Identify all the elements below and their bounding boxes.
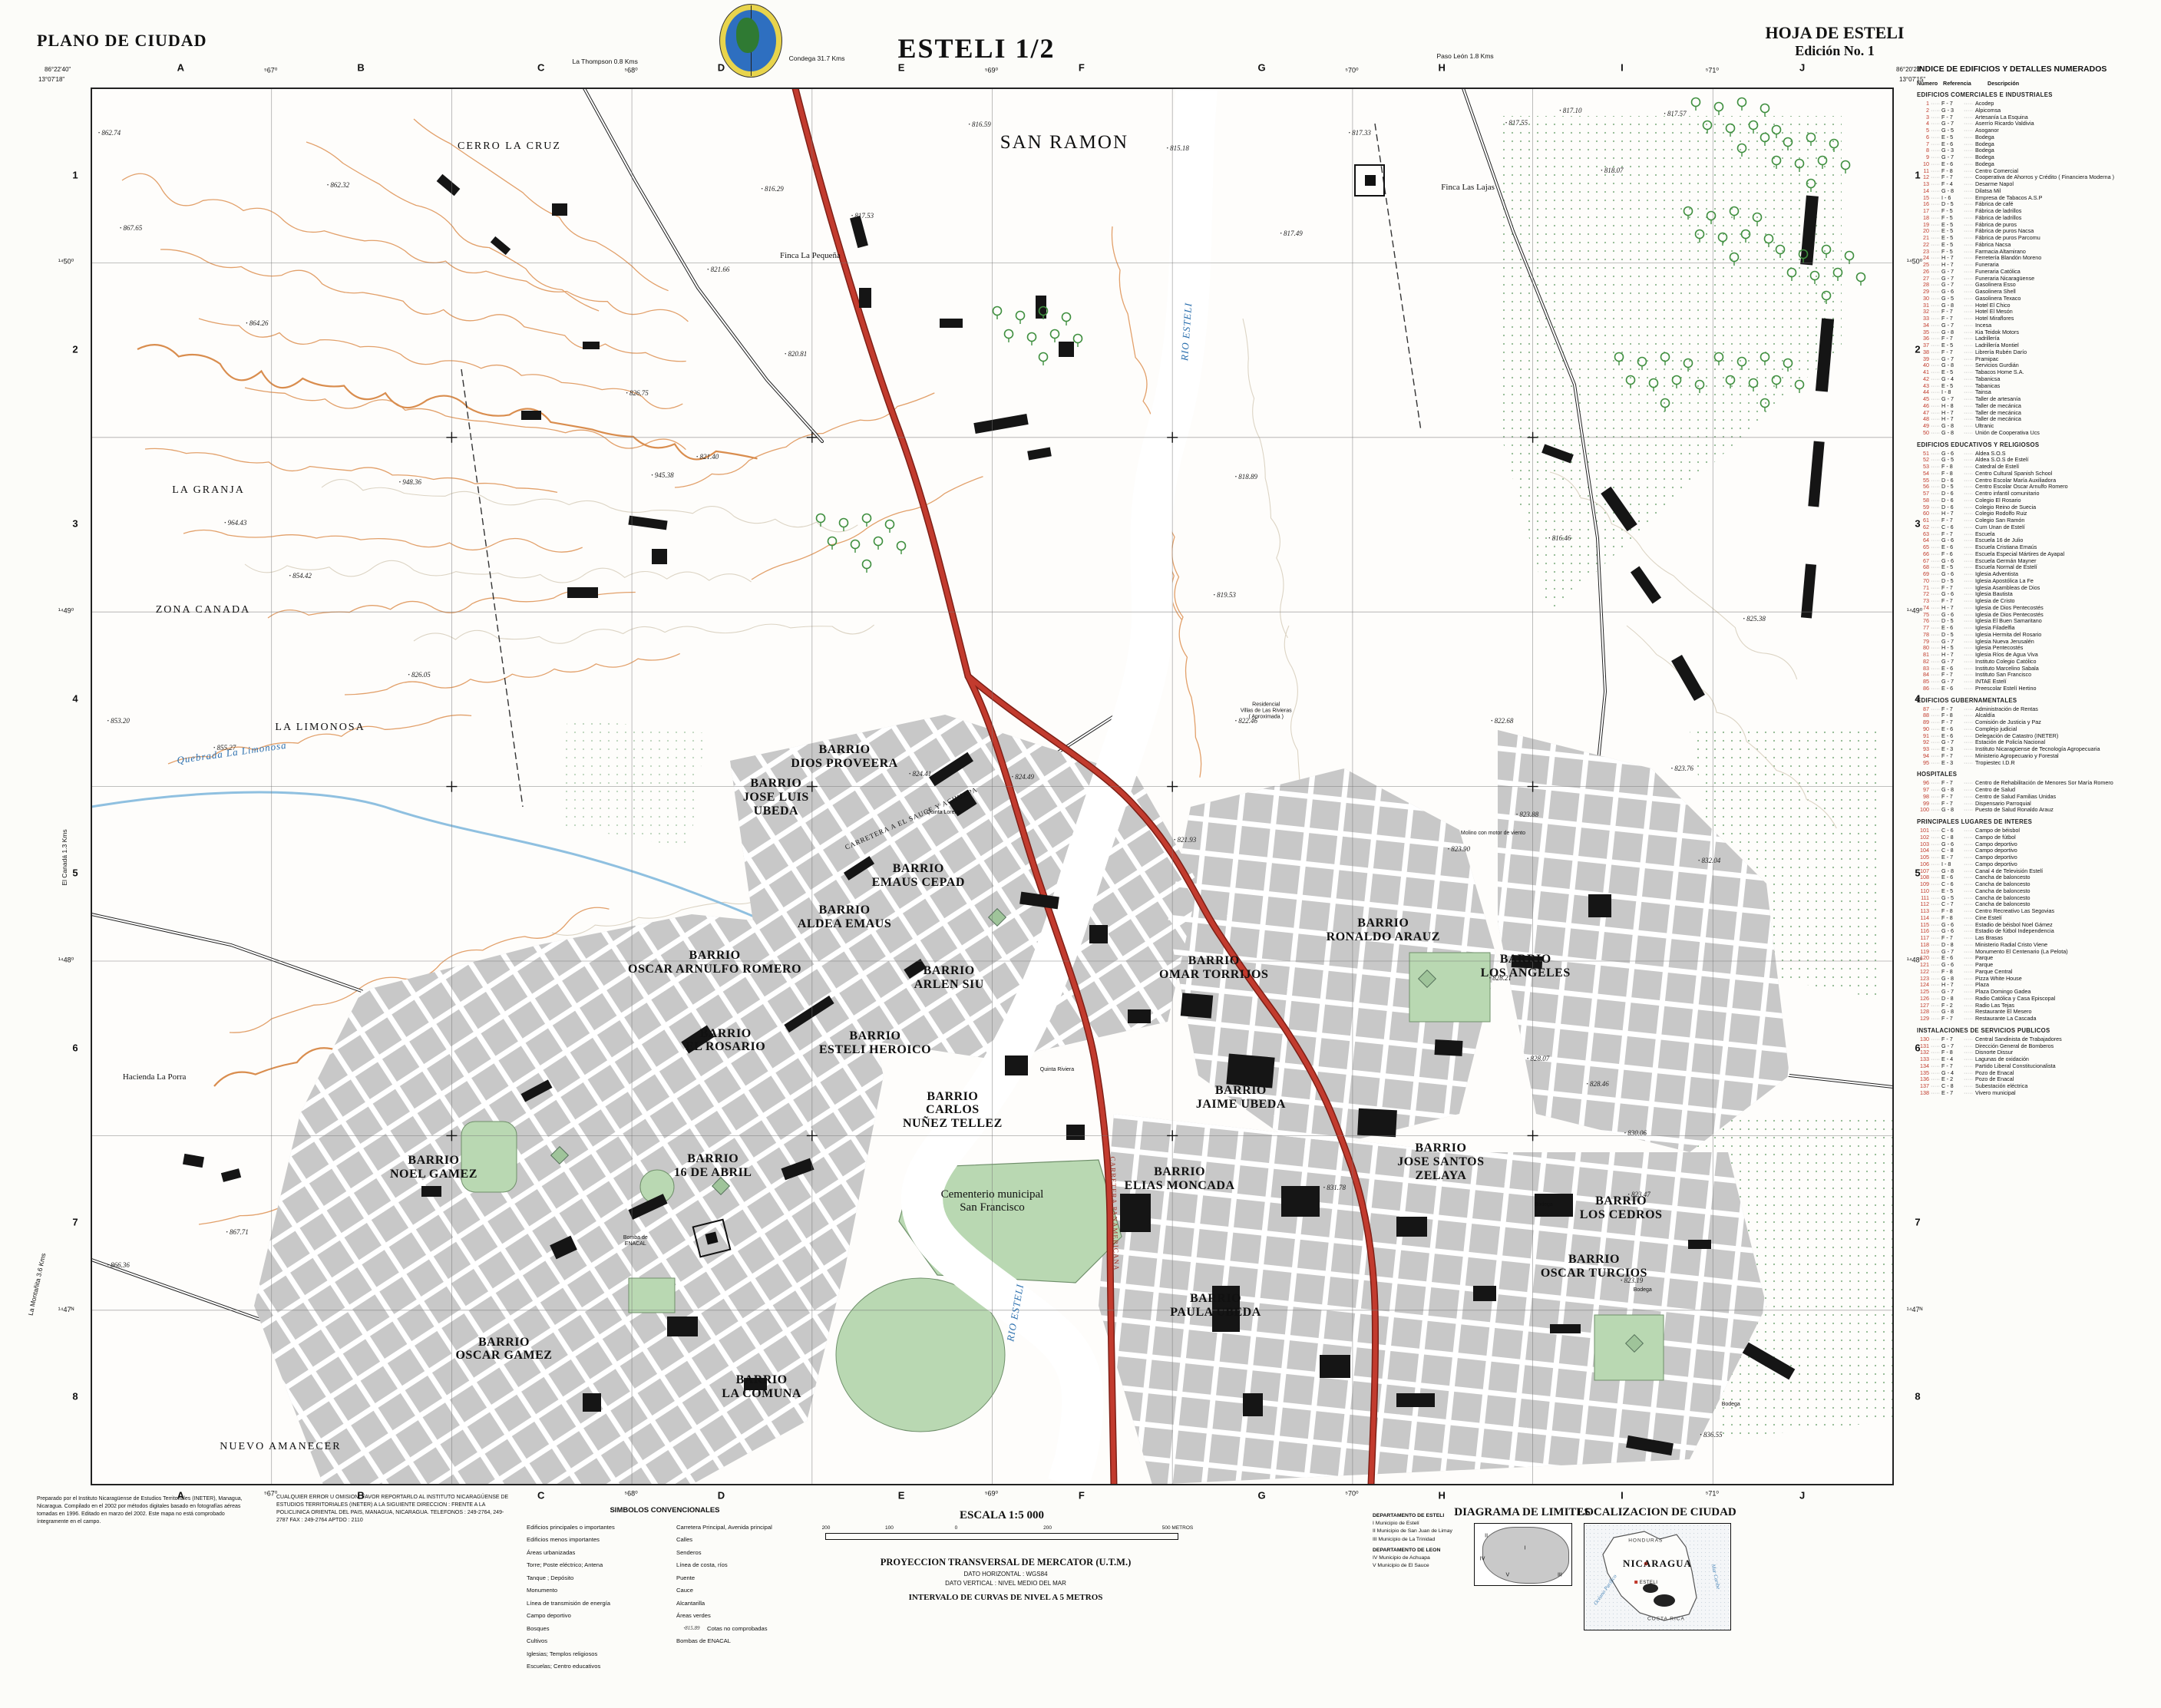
index-entry: 121 ····· G - 6 ····· Parque: [1917, 962, 2156, 969]
entry-description: Asoganor: [1975, 127, 2156, 134]
spot-height: 867.71: [226, 1228, 248, 1236]
entry-description: Campo deportivo: [1975, 861, 2156, 868]
entry-description: Catedral de Estelí: [1975, 464, 2156, 471]
margin-note: Paso León 1.8 Kms: [1436, 52, 1493, 60]
entry-description: Funeraria: [1975, 262, 2156, 269]
spot-height: 945.38: [651, 471, 673, 479]
index-section-title: EDIFICIOS EDUCATIVOS Y RELIGIOSOS: [1917, 441, 2156, 448]
entry-description: Canal 4 de Televisión Estelí: [1975, 868, 2156, 875]
municipios-esteli: I Municipio de EstelíII Municipio de San…: [1373, 1520, 1472, 1544]
legend-left: Edificios principales o importantes Edif…: [527, 1521, 676, 1673]
entry-description: Fábrica de puros: [1975, 222, 2156, 229]
spot-height: 862.74: [98, 129, 121, 137]
spot-height: 864.26: [246, 319, 268, 327]
spot-height: 817.10: [1559, 107, 1581, 114]
entry-description: Artesanía La Esquina: [1975, 114, 2156, 121]
entry-description: Centro Escolar María Auxiliadora: [1975, 477, 2156, 484]
entry-description: Gasolinera Shell: [1975, 289, 2156, 296]
entry-description: Puesto de Salud Ronaldo Arauz: [1975, 807, 2156, 814]
entry-description: Iglesia Pentecostés: [1975, 645, 2156, 652]
entry-description: Iglesia Filadelfia: [1975, 625, 2156, 632]
entry-description: Ladrillería: [1975, 335, 2156, 342]
entry-description: Bodega: [1975, 141, 2156, 148]
entry-description: Fábrica Nacsa: [1975, 242, 2156, 249]
entry-description: Acodep: [1975, 101, 2156, 107]
entry-description: Ministerio Agropecuario y Forestal: [1975, 753, 2156, 760]
entry-description: Centro Escolar Oscar Arnulfo Romero: [1975, 484, 2156, 491]
index-section-title: HOSPITALES: [1917, 771, 2156, 778]
datum-horizontal: DATO HORIZONTAL : WGS84: [881, 1571, 1132, 1578]
col-referencia: Referencia: [1943, 80, 1988, 87]
entry-description: INTAE Estelí: [1975, 679, 2156, 686]
entry-description: Aldea S.O.S: [1975, 451, 2156, 458]
index-section-title: PRINCIPALES LUGARES DE INTERES: [1917, 818, 2156, 825]
entry-description: Aldea S.O.S de Estelí: [1975, 457, 2156, 464]
spot-height: 821.40: [696, 453, 719, 461]
entry-description: Lagunas de oxidación: [1975, 1056, 2156, 1063]
entry-description: Parque: [1975, 962, 2156, 969]
index-entry: 72 ····· G - 6 ····· Iglesia Bautista: [1917, 591, 2156, 598]
entry-description: Pozo de Enacal: [1975, 1076, 2156, 1083]
entry-description: Pramipac: [1975, 356, 2156, 363]
scale-tick: 500 METROS: [1162, 1525, 1193, 1531]
entry-description: Hotel Miraflores: [1975, 316, 2156, 322]
entry-description: Iglesia de Dios Pentecostés: [1975, 605, 2156, 612]
entry-description: Complejo judicial: [1975, 726, 2156, 733]
index-column-headers: Número Referencia Descripción: [1917, 80, 2156, 87]
spot-height: 816.29: [762, 185, 784, 193]
entry-description: Iglesia Asambleas de Dios: [1975, 585, 2156, 592]
map-canvas[interactable]: SAN RAMONCERRO LA CRUZLA GRANJAZONA CANA…: [91, 88, 1893, 1485]
entry-description: Unión de Cooperativa Ucs: [1975, 430, 2156, 437]
entry-description: Partido Liberal Constitucionalista: [1975, 1063, 2156, 1070]
spot-height: 816.59: [968, 121, 990, 128]
legend-item: Edificios principales o importantes: [527, 1521, 676, 1534]
spot-height: 817.57: [1664, 110, 1686, 117]
index-entry: 87 ····· F - 7 ····· Administración de R…: [1917, 706, 2156, 713]
spot-height: 817.33: [1349, 129, 1371, 137]
index-entry: 43 ····· E - 5 ····· Tabanicas: [1917, 383, 2156, 390]
municipios-leon: IV Municipio de AchuapaV Municipio de El…: [1373, 1554, 1472, 1570]
legend-item: Edificios menos importantes: [527, 1534, 676, 1547]
spot-height: 828.46: [1586, 1080, 1608, 1088]
spot-height: 818.07: [1601, 167, 1623, 174]
entry-description: Pizza White House: [1975, 976, 2156, 983]
spot-height: 866.36: [107, 1261, 130, 1269]
error-report-notice: CUALQUIER ERROR U OMISION, FAVOR REPORTA…: [276, 1494, 514, 1525]
index-rows: EDIFICIOS COMERCIALES E INDUSTRIALES 1 ·…: [1917, 91, 2156, 1097]
legend: SIMBOLOS CONVENCIONALES Edificios princi…: [527, 1506, 826, 1673]
entry-description: Iglesia de Dios Pentecostés: [1975, 612, 2156, 619]
limites-title: DIAGRAMA DE LIMITES: [1454, 1506, 1591, 1519]
legend-item: Bombas de ENACAL: [676, 1635, 826, 1648]
spot-height: 818.89: [1235, 473, 1257, 481]
datum-vertical: DATO VERTICAL : NIVEL MEDIO DEL MAR: [881, 1580, 1132, 1587]
index-entry: 133 ····· E - 4 ····· Lagunas de oxidaci…: [1917, 1056, 2156, 1063]
entry-description: Fábrica de ladrillos: [1975, 208, 2156, 215]
municipio-item: I Municipio de Estelí: [1373, 1520, 1472, 1528]
entry-description: Campo de béisbol: [1975, 828, 2156, 834]
spot-height: 824.49: [1012, 773, 1034, 781]
entry-description: Cancha de baloncesto: [1975, 888, 2156, 895]
entry-description: Dilatsa Mil: [1975, 188, 2156, 195]
entry-description: Iglesia Hermita del Rosario: [1975, 632, 2156, 639]
entry-description: Ultranic: [1975, 423, 2156, 430]
entry-description: Tabanicsa: [1975, 376, 2156, 383]
spot-height: 828.21: [1489, 974, 1512, 982]
spot-height: 815.18: [1167, 144, 1189, 152]
spot-height: 820.81: [785, 350, 807, 358]
entry-description: Ferretería Blandón Moreno: [1975, 255, 2156, 262]
entry-description: Gasolinera Esso: [1975, 282, 2156, 289]
entry-grid-ref: G - 8: [1941, 430, 1961, 437]
entry-grid-ref: F - 7: [1941, 1016, 1961, 1022]
spot-height: 948.36: [399, 478, 421, 486]
entry-description: Cooperativa de Ahorros y Crédito ( Finan…: [1975, 174, 2156, 181]
entry-description: Librería Rubén Darío: [1975, 349, 2156, 356]
margin-note: Condega 31.7 Kms: [789, 55, 845, 62]
index-entry: 14 ····· G - 8 ····· Dilatsa Mil: [1917, 188, 2156, 195]
legend-item: 815.89 Cotas no comprobadas: [676, 1622, 826, 1635]
index-section-title: EDIFICIOS GUBERNAMENTALES: [1917, 697, 2156, 704]
entry-description: Servicios Gurdián: [1975, 362, 2156, 369]
entry-description: Hotel El Mesón: [1975, 309, 2156, 316]
spot-height: 823.88: [1516, 811, 1538, 818]
entry-description: Colegio Reino de Suecia: [1975, 504, 2156, 511]
entry-description: Estación de Policía Nacional: [1975, 739, 2156, 746]
projection-name: PROYECCION TRANSVERSAL DE MERCATOR (U.T.…: [881, 1557, 1132, 1568]
entry-description: Incesa: [1975, 322, 2156, 329]
spot-height: 823.19: [1621, 1277, 1643, 1284]
index-entry: 53 ····· F - 8 ····· Catedral de Estelí: [1917, 464, 2156, 471]
legend-item: Línea de transmisión de energía: [527, 1597, 676, 1610]
spot-height: 855.27: [213, 744, 236, 752]
entry-description: Aserrío Ricardo Valdivia: [1975, 121, 2156, 127]
limites-numeral: IV: [1480, 1557, 1485, 1562]
legend-item: Áreas urbanizadas: [527, 1546, 676, 1559]
municipio-item: III Municipio de La Trinidad: [1373, 1536, 1472, 1544]
scale-tick: 200: [1043, 1525, 1052, 1531]
spot-height: 817.53: [851, 212, 874, 220]
legend-item: Torre; Poste eléctrico; Antena: [527, 1559, 676, 1572]
entry-description: Escuela Cristiana Emaús: [1975, 544, 2156, 551]
entry-description: Gasolinera Texaco: [1975, 296, 2156, 302]
entry-description: Tropiestec I.D.R: [1975, 760, 2156, 767]
spot-height: 826.05: [408, 671, 431, 679]
localizacion-label: NICARAGUA: [1623, 1558, 1692, 1570]
entry-grid-ref: E - 3: [1941, 760, 1961, 767]
limites-numeral: I: [1525, 1546, 1526, 1551]
entry-description: Vivero municipal: [1975, 1090, 2156, 1097]
projection-block: PROYECCION TRANSVERSAL DE MERCATOR (U.T.…: [881, 1557, 1132, 1602]
entry-description: Cancha de baloncesto: [1975, 901, 2156, 908]
spot-height: 817.55: [1505, 119, 1528, 127]
index-entry: 128 ····· G - 8 ····· Restaurante El Mes…: [1917, 1009, 2156, 1016]
index-entry: 112 ····· C - 7 ····· Cancha de balonces…: [1917, 901, 2156, 908]
entry-number: 95: [1917, 760, 1929, 767]
entry-description: Bodega: [1975, 134, 2156, 141]
index-entry: 50 ····· G - 8 ····· Unión de Cooperativ…: [1917, 430, 2156, 437]
legend-item: Calles: [676, 1534, 826, 1547]
entry-description: Kia Teidok Motors: [1975, 329, 2156, 336]
entry-description: Bodega: [1975, 147, 2156, 154]
col-numero: Número: [1917, 80, 1943, 87]
index-entry: 131 ····· G - 7 ····· Dirección General …: [1917, 1043, 2156, 1050]
legend-item: Iglesias; Templos religiosos: [527, 1647, 676, 1660]
depto-leon-title: DEPARTAMENTO DE LEON: [1373, 1547, 1472, 1554]
municipio-item: IV Municipio de Achuapa: [1373, 1554, 1472, 1562]
spot-height: 822.46: [1235, 717, 1257, 725]
index-entry: 116 ····· G - 6 ····· Estadio de fútbol …: [1917, 928, 2156, 935]
index-entry: 35 ····· G - 8 ····· Kia Teidok Motors: [1917, 329, 2156, 336]
entry-description: Alcaldía: [1975, 712, 2156, 719]
col-descripcion: Descripción: [1988, 80, 2019, 87]
margin-note: El Canadá 1.3 Kms: [61, 829, 68, 885]
entry-description: Funeraria Nicaragüense: [1975, 276, 2156, 282]
entry-description: Taller de mecánica: [1975, 410, 2156, 417]
index-entry: 52 ····· G - 5 ····· Aldea S.O.S de Este…: [1917, 457, 2156, 464]
spot-height: 853.20: [107, 717, 130, 725]
entry-description: Fábrica de puros Parcomu: [1975, 235, 2156, 242]
map-frame: SAN RAMONCERRO LA CRUZLA GRANJAZONA CANA…: [91, 88, 1894, 1485]
entry-description: Escuela: [1975, 531, 2156, 538]
legend-right: Carretera Principal, Avenida principal C…: [676, 1521, 826, 1673]
index-entry: 65 ····· E - 6 ····· Escuela Cristiana E…: [1917, 544, 2156, 551]
margin-note: La Montañita 3.6 Kms: [26, 1253, 47, 1317]
entry-description: Colegio Rodolfo Ruiz: [1975, 510, 2156, 517]
entry-description: Centro de Salud Familias Unidas: [1975, 794, 2156, 801]
entry-description: Taller de mecánica: [1975, 403, 2156, 410]
entry-description: Escuela Germán Mayner: [1975, 558, 2156, 565]
localizacion-map: HONDURASNICARAGUAESTELICOSTA RICAMar Car…: [1584, 1523, 1731, 1630]
entry-description: Plaza: [1975, 982, 2156, 989]
index-entry: 105 ····· E - 7 ····· Campo deportivo: [1917, 854, 2156, 861]
index-entry: 97 ····· G - 8 ····· Centro de Salud: [1917, 787, 2156, 794]
scale-tick: 100: [885, 1525, 894, 1531]
entry-description: Iglesia Adventista: [1975, 571, 2156, 578]
limites-numeral: II: [1485, 1534, 1488, 1539]
spot-heights: 862.74862.32867.65864.26816.29817.53821.…: [91, 88, 1893, 1485]
entry-description: Iglesia Bautista: [1975, 591, 2156, 598]
index-entry: 100 ····· G - 8 ····· Puesto de Salud Ro…: [1917, 807, 2156, 814]
credits-text: Preparado por el Instituto Nicaragüense …: [37, 1495, 252, 1527]
legend-item: Campo deportivo: [527, 1610, 676, 1623]
entry-description: Campo de fútbol: [1975, 834, 2156, 841]
index-entry: 32 ····· F - 7 ····· Hotel El Mesón: [1917, 309, 2156, 316]
entry-description: Comisión de Justicia y Paz: [1975, 719, 2156, 726]
entry-number: 138: [1917, 1090, 1929, 1097]
spot-height: 824.41: [909, 770, 931, 778]
limites-diagram: IIIIVVIII: [1474, 1523, 1572, 1586]
localizacion-label: HONDURAS: [1628, 1538, 1663, 1544]
entry-description: Alpicomsa: [1975, 107, 2156, 114]
municipio-item: II Municipio de San Juan de Limay: [1373, 1528, 1472, 1535]
scale-bar: 2001000200500 METROS: [825, 1533, 1178, 1540]
entry-description: Centro infantil comunitario: [1975, 491, 2156, 497]
index-entry: 86 ····· E - 6 ····· Preescolar Estelí H…: [1917, 686, 2156, 692]
entry-description: Iglesia Ríos de Agua Viva: [1975, 652, 2156, 659]
localizacion-title: LOCALIZACION DE CIUDAD: [1577, 1506, 1736, 1519]
index-entry: 12 ····· F - 7 ····· Cooperativa de Ahor…: [1917, 174, 2156, 181]
entry-description: Campo deportivo: [1975, 841, 2156, 848]
legend-item: Tanque ; Depósito: [527, 1571, 676, 1584]
limites-numeral: V: [1505, 1573, 1509, 1578]
spot-height: 862.32: [327, 181, 349, 189]
spot-height: 854.42: [289, 572, 312, 580]
entry-description: Parque Central: [1975, 969, 2156, 976]
spot-height: 867.65: [120, 224, 142, 232]
entry-description: Pozo de Enacal: [1975, 1070, 2156, 1077]
spot-height: 823.90: [1448, 845, 1470, 853]
entry-description: Estadio de béisbol Noel Gámez: [1975, 922, 2156, 929]
entry-description: Cine Estelí: [1975, 915, 2156, 922]
contour-interval: INTERVALO DE CURVAS DE NIVEL A 5 METROS: [881, 1593, 1132, 1602]
localizacion-label: Mar Caribe: [1710, 1564, 1722, 1590]
index-title: INDICE DE EDIFICIOS Y DETALLES NUMERADOS: [1917, 64, 2156, 74]
index-entry: 129 ····· F - 7 ····· Restaurante La Cas…: [1917, 1016, 2156, 1022]
entry-description: Tabanicas: [1975, 383, 2156, 390]
index-entry: 88 ····· F - 8 ····· Alcaldía: [1917, 712, 2156, 719]
scale-block: ESCALA 1:5 000 2001000200500 METROS: [825, 1509, 1178, 1540]
entry-description: Subestación eléctrica: [1975, 1083, 2156, 1090]
entry-description: Centro Comercial: [1975, 168, 2156, 175]
spot-height: 822.68: [1491, 717, 1513, 725]
entry-description: Bodega: [1975, 154, 2156, 161]
entry-description: Colegio San Ramón: [1975, 517, 2156, 524]
spot-height: 831.78: [1323, 1184, 1346, 1191]
scale-title: ESCALA 1:5 000: [825, 1509, 1178, 1522]
entry-description: Fábrica de puros Nacsa: [1975, 228, 2156, 235]
legend-item: Cauce: [676, 1584, 826, 1597]
entry-description: Taller de artesanía: [1975, 396, 2156, 403]
entry-description: Tabacos Home S.A.: [1975, 369, 2156, 376]
entry-description: Restaurante El Mesero: [1975, 1009, 2156, 1016]
legend-item: Monumento: [527, 1584, 676, 1597]
entry-description: Escuela Especial Mártires de Ayapal: [1975, 551, 2156, 558]
entry-number: 86: [1917, 686, 1929, 692]
entry-description: Campo deportivo: [1975, 847, 2156, 854]
municipio-item: V Municipio de El Sauce: [1373, 1562, 1472, 1570]
entry-description: Preescolar Estelí Hertino: [1975, 686, 2156, 692]
entry-description: Iglesia El Buen Samaritano: [1975, 618, 2156, 625]
index-entry: 98 ····· F - 7 ····· Centro de Salud Fam…: [1917, 794, 2156, 801]
index-entry: 62 ····· C - 6 ····· Curn Unan de Estelí: [1917, 524, 2156, 531]
entry-description: Instituto Marcelino Sabala: [1975, 666, 2156, 672]
index-entry: 113 ····· F - 8 ····· Centro Recreativo …: [1917, 908, 2156, 915]
entry-description: Colegio El Rosario: [1975, 497, 2156, 504]
index-entry: 83 ····· E - 6 ····· Instituto Marcelino…: [1917, 666, 2156, 672]
index-entry: 126 ····· D - 8 ····· Radio Católica y C…: [1917, 996, 2156, 1003]
entry-description: Iglesia Nueva Jerusalén: [1975, 639, 2156, 646]
legend-item: Línea de costa, ríos: [676, 1559, 826, 1572]
entry-description: Iglesia Apostólica La Fe: [1975, 578, 2156, 585]
entry-description: Instituto San Francisco: [1975, 672, 2156, 679]
entry-description: Radio Las Tejas: [1975, 1003, 2156, 1009]
spot-height: 826.75: [626, 389, 649, 397]
entry-description: Dirección General de Bomberos: [1975, 1043, 2156, 1050]
legend-item: Cultivos: [527, 1635, 676, 1648]
index-entry: 17 ····· F - 5 ····· Fábrica de ladrillo…: [1917, 208, 2156, 215]
entry-description: Escuela 16 de Julio: [1975, 537, 2156, 544]
entry-description: Cancha de baloncesto: [1975, 881, 2156, 888]
entry-description: Central Sandinista de Trabajadores: [1975, 1036, 2156, 1043]
entry-description: Taller de mecánica: [1975, 416, 2156, 423]
entry-description: Centro de Rehabilitación de Menores Sor …: [1975, 780, 2156, 787]
legend-item: Áreas verdes: [676, 1610, 826, 1623]
entry-description: Instituto Nicaragüense de Tecnología Agr…: [1975, 746, 2156, 753]
index-entry: 2 ····· G - 3 ····· Alpicomsa: [1917, 107, 2156, 114]
margin-note: La Thompson 0.8 Kms: [573, 58, 638, 65]
legend-item: Bosques: [527, 1622, 676, 1635]
index-entry: 95 ····· E - 3 ····· Tropiestec I.D.R: [1917, 760, 2156, 767]
localizacion-label: ESTELI: [1640, 1581, 1658, 1585]
spot-height: 821.93: [1174, 836, 1196, 844]
index-entry: 37 ····· E - 5 ····· Ladrillería Montiel: [1917, 342, 2156, 349]
spot-height: 819.53: [1214, 591, 1236, 599]
spot-height: 836.55: [1700, 1431, 1722, 1439]
index-entry: 70 ····· D - 5 ····· Iglesia Apostólica …: [1917, 578, 2156, 585]
localizacion-label: COSTA RICA: [1647, 1617, 1685, 1622]
spot-height: 821.66: [707, 266, 729, 273]
index-entry: 138 ····· E - 7 ····· Vivero municipal: [1917, 1090, 2156, 1097]
entry-description: Radio Católica y Casa Episcopal: [1975, 996, 2156, 1003]
index-entry: 60 ····· H - 7 ····· Colegio Rodolfo Rui…: [1917, 510, 2156, 517]
legend-item: Senderos: [676, 1546, 826, 1559]
entry-description: Hotel El Chico: [1975, 302, 2156, 309]
index-entry: 16 ····· D - 5 ····· Fábrica de café: [1917, 201, 2156, 208]
spot-height: 964.43: [224, 519, 246, 527]
legend-item: Puente: [676, 1571, 826, 1584]
entry-description: Las Brasas: [1975, 935, 2156, 942]
entry-description: Instituto Colegio Católico: [1975, 659, 2156, 666]
index-entry: 10 ····· E - 6 ····· Bodega: [1917, 161, 2156, 168]
entry-description: Dispensario Parroquial: [1975, 801, 2156, 808]
entry-description: Empresa de Tabacos A.S.P: [1975, 195, 2156, 202]
index-entry: 22 ····· E - 5 ····· Fábrica Nacsa: [1917, 242, 2156, 249]
spot-height: 823.47: [1627, 1191, 1650, 1198]
entry-description: Estadio de fútbol Independencia: [1975, 928, 2156, 935]
entry-description: Desarme Napol: [1975, 181, 2156, 188]
spot-height: 830.06: [1624, 1129, 1647, 1137]
legend-symbol-icon: 815.89: [676, 1625, 707, 1631]
entry-number: 50: [1917, 430, 1929, 437]
limites-numeral: III: [1558, 1573, 1562, 1578]
spot-height: 817.49: [1280, 230, 1302, 237]
entry-description: Farmacia Altamirano: [1975, 249, 2156, 256]
spot-height: 816.46: [1548, 534, 1571, 542]
scale-tick: 0: [955, 1525, 958, 1531]
index-entry: 11 ····· F - 8 ····· Centro Comercial: [1917, 168, 2156, 175]
legend-item: Alcantarilla: [676, 1597, 826, 1610]
entry-description: Campo deportivo: [1975, 854, 2156, 861]
entry-description: Delegación de Catastro (INETER): [1975, 733, 2156, 740]
entry-description: Centro Cultural Spanish School: [1975, 471, 2156, 477]
entry-description: Monumento El Centenario (La Pelota): [1975, 949, 2156, 956]
spot-height: 825.38: [1743, 615, 1766, 623]
entry-grid-ref: G - 8: [1941, 807, 1961, 814]
entry-description: Ladrillería Montiel: [1975, 342, 2156, 349]
entry-description: Centro de Salud: [1975, 787, 2156, 794]
legend-item: Escuelas; Centro educativos: [527, 1660, 676, 1673]
entry-description: Fábrica de café: [1975, 201, 2156, 208]
entry-description: Bodega: [1975, 161, 2156, 168]
entry-description: Funeraria Católica: [1975, 269, 2156, 276]
localizacion-label: Océano Pacífico: [1592, 1573, 1617, 1606]
legend-item: Carretera Principal, Avenida principal: [676, 1521, 826, 1534]
entry-description: Tainsa: [1975, 389, 2156, 396]
index-section-title: EDIFICIOS COMERCIALES E INDUSTRIALES: [1917, 91, 2156, 98]
entry-number: 129: [1917, 1016, 1929, 1022]
